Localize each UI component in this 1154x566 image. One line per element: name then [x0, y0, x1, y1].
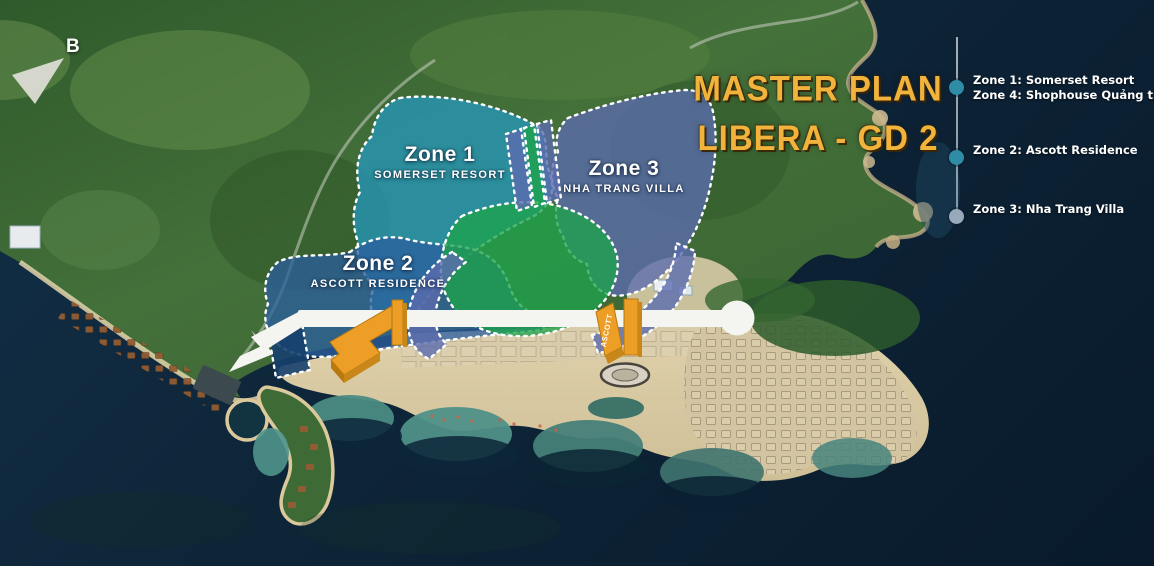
compass-north-label: B: [66, 36, 80, 58]
plan-title: MASTER PLAN LIBERA - GD 2: [690, 63, 946, 163]
legend-text-zone2: Zone 2: Ascott Residence: [973, 143, 1138, 158]
zone2-subtitle: ASCOTT RESIDENCE: [283, 278, 473, 290]
legend-text-zone3: Zone 3: Nha Trang Villa: [973, 202, 1124, 217]
plan-title-line2: LIBERA - GD 2: [690, 113, 946, 163]
seabed-shade: [30, 492, 250, 548]
hook-lagoon: [253, 428, 289, 476]
legend-text-zone4: Zone 4: Shophouse Quảng trường: [973, 88, 1154, 103]
legend-item-zone-2: Zone 2: Ascott Residence: [973, 143, 1138, 158]
tower-small: [392, 300, 407, 347]
legend-text-zone1: Zone 1: Somerset Resort: [973, 73, 1154, 88]
zone2-title: Zone 2: [283, 252, 473, 276]
legend-dot-2: [949, 150, 964, 165]
mainland-building: [10, 226, 40, 248]
zone1-title: Zone 1: [355, 143, 525, 167]
legend-item-zones-1-4: Zone 1: Somerset Resort Zone 4: Shophous…: [973, 73, 1154, 102]
seabed-shade: [300, 502, 560, 554]
legend: Zone 1: Somerset Resort Zone 4: Shophous…: [946, 30, 1152, 235]
oval-plaza: [601, 364, 649, 387]
zone3-subtitle: NHA TRANG VILLA: [539, 183, 709, 195]
legend-dot-3: [949, 209, 964, 224]
plan-title-line1: MASTER PLAN: [690, 63, 946, 113]
legend-item-zone-3: Zone 3: Nha Trang Villa: [973, 202, 1124, 217]
zone2-map-label: Zone 2 ASCOTT RESIDENCE: [283, 252, 473, 290]
zone3-map-label: Zone 3 NHA TRANG VILLA: [539, 157, 709, 195]
zone3-title: Zone 3: [539, 157, 709, 181]
zone1-subtitle: SOMERSET RESORT: [355, 169, 525, 181]
zone1-map-label: Zone 1 SOMERSET RESORT: [355, 143, 525, 181]
master-plan-map: ASCOTT B MASTER PLAN LIBERA - GD 2 Zone …: [0, 0, 1154, 566]
tower-tall: [624, 299, 642, 357]
legend-dot-1: [949, 80, 964, 95]
legend-line: [956, 37, 958, 220]
